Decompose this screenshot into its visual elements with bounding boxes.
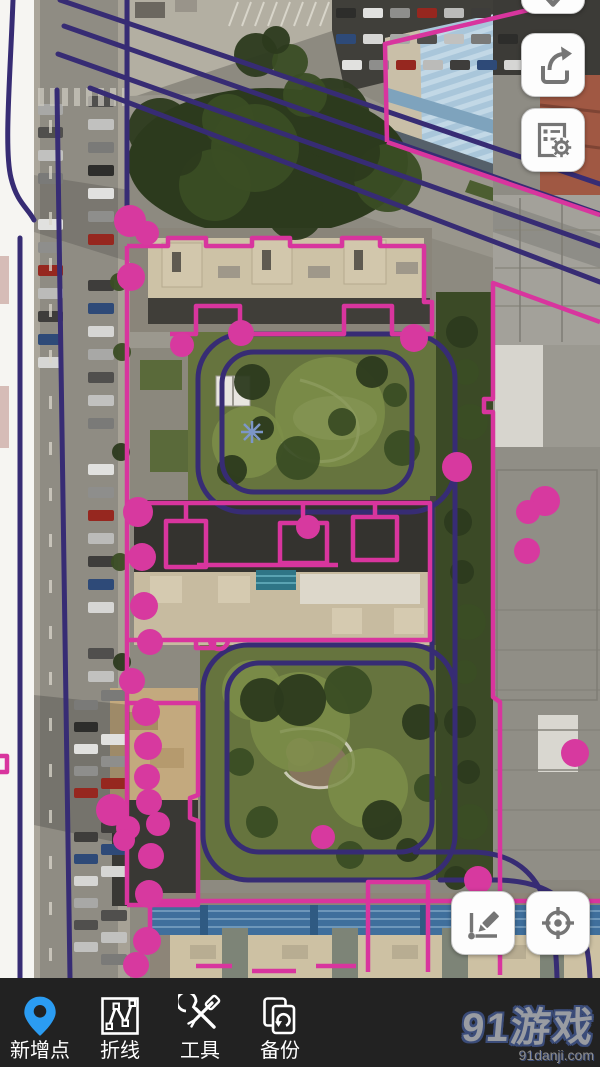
map-marker[interactable] <box>400 324 428 352</box>
app-screen: 新增点 折线 <box>0 0 600 1067</box>
map-marker[interactable] <box>137 629 163 655</box>
map-marker[interactable] <box>134 732 162 760</box>
map-marker[interactable] <box>132 698 160 726</box>
backup-icon <box>258 992 302 1040</box>
map-view[interactable] <box>0 0 600 978</box>
toolbar-item-label: 新增点 <box>10 1040 70 1062</box>
map-marker[interactable] <box>464 866 492 894</box>
share-button[interactable] <box>521 33 585 97</box>
map-marker[interactable] <box>138 843 164 869</box>
map-marker[interactable] <box>514 538 540 564</box>
draw-edit-button[interactable] <box>451 891 515 955</box>
map-marker[interactable] <box>311 825 335 849</box>
map-marker[interactable] <box>136 789 162 815</box>
map-marker[interactable] <box>117 263 145 291</box>
map-marker[interactable] <box>516 500 540 524</box>
map-marker[interactable] <box>128 543 156 571</box>
layer-settings-button[interactable] <box>521 108 585 172</box>
bottom-toolbar: 新增点 折线 <box>0 978 600 1067</box>
share-icon <box>531 43 575 87</box>
map-marker[interactable] <box>146 812 170 836</box>
map-marker[interactable] <box>561 739 589 767</box>
toolbar-item-tools[interactable]: 工具 <box>160 978 240 1067</box>
polyline-pencil-icon <box>461 901 505 945</box>
tools-icon <box>178 992 222 1040</box>
crosshair-icon <box>536 901 580 945</box>
map-marker[interactable] <box>123 497 153 527</box>
toolbar-item-label: 工具 <box>180 1040 220 1062</box>
map-marker[interactable] <box>228 320 254 346</box>
map-marker[interactable] <box>135 880 163 908</box>
toolbar-item-backup[interactable]: 备份 <box>240 978 320 1067</box>
list-gear-icon <box>531 118 575 162</box>
map-marker[interactable] <box>130 592 158 620</box>
locate-button[interactable] <box>526 891 590 955</box>
map-marker[interactable] <box>135 221 159 245</box>
collapse-map-button[interactable] <box>521 0 585 14</box>
polyline-icon <box>98 992 142 1040</box>
satellite-imagery <box>0 0 600 978</box>
map-marker[interactable] <box>134 764 160 790</box>
toolbar-item-label: 折线 <box>100 1040 140 1062</box>
map-marker[interactable] <box>170 333 194 357</box>
toolbar-item-polyline[interactable]: 折线 <box>80 978 160 1067</box>
map-marker[interactable] <box>119 668 145 694</box>
toolbar-item-add-point[interactable]: 新增点 <box>0 978 80 1067</box>
map-marker[interactable] <box>113 829 135 851</box>
map-marker[interactable] <box>133 927 161 955</box>
map-marker[interactable] <box>123 952 149 978</box>
pin-icon <box>17 992 63 1040</box>
toolbar-item-label: 备份 <box>260 1040 300 1062</box>
chevron-down-icon <box>521 0 585 13</box>
map-marker[interactable] <box>296 515 320 539</box>
map-marker[interactable] <box>442 452 472 482</box>
